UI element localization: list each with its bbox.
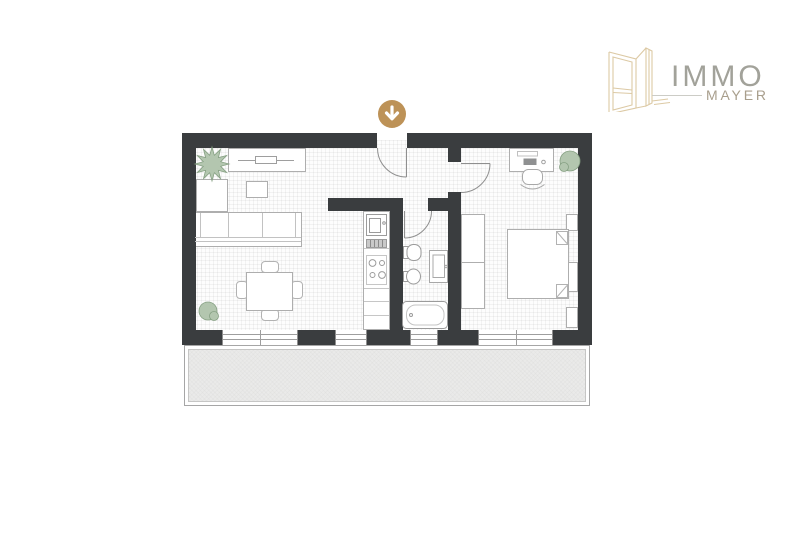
wall-left xyxy=(182,148,196,330)
brand-name-secondary: MAYER xyxy=(706,88,769,102)
balcony xyxy=(184,345,590,406)
wall-kitchen-bath xyxy=(390,211,403,330)
entrance-arrow-icon xyxy=(378,100,406,128)
tv-sideboard xyxy=(228,148,306,172)
window-living-small xyxy=(335,330,367,345)
wall-bottom-5 xyxy=(553,330,592,345)
wardrobe xyxy=(461,214,485,309)
wall-bottom-1 xyxy=(182,330,222,345)
dining-table xyxy=(246,272,293,311)
desk xyxy=(509,148,554,172)
wall-bottom-4 xyxy=(438,330,478,345)
brand-logo: IMMO MAYER xyxy=(604,46,779,114)
wall-bottom-2 xyxy=(298,330,335,345)
side-cabinet xyxy=(196,179,228,212)
brand-divider-line xyxy=(652,95,702,96)
brand-subtitle: MAYER xyxy=(652,88,770,102)
wall-bedroom-left xyxy=(448,192,461,330)
double-bed xyxy=(507,229,569,299)
floor-plan-page: IMMO MAYER xyxy=(0,0,800,533)
wall-bedroom-stub xyxy=(448,148,461,162)
balcony-terrace-surface xyxy=(188,349,586,402)
wall-top-left xyxy=(182,133,377,148)
kitchen-counter xyxy=(363,211,390,330)
nightstand-bottom xyxy=(566,307,578,328)
sofa xyxy=(194,212,302,247)
window-bathroom xyxy=(410,330,438,345)
wall-right xyxy=(578,148,592,330)
open-window-icon xyxy=(604,46,672,112)
wall-top-right xyxy=(407,133,592,148)
window-bedroom xyxy=(478,330,553,345)
coffee-table xyxy=(246,181,268,198)
wall-hall-kitchen xyxy=(328,198,403,211)
window-living-large xyxy=(222,330,298,345)
wall-bottom-3 xyxy=(367,330,410,345)
